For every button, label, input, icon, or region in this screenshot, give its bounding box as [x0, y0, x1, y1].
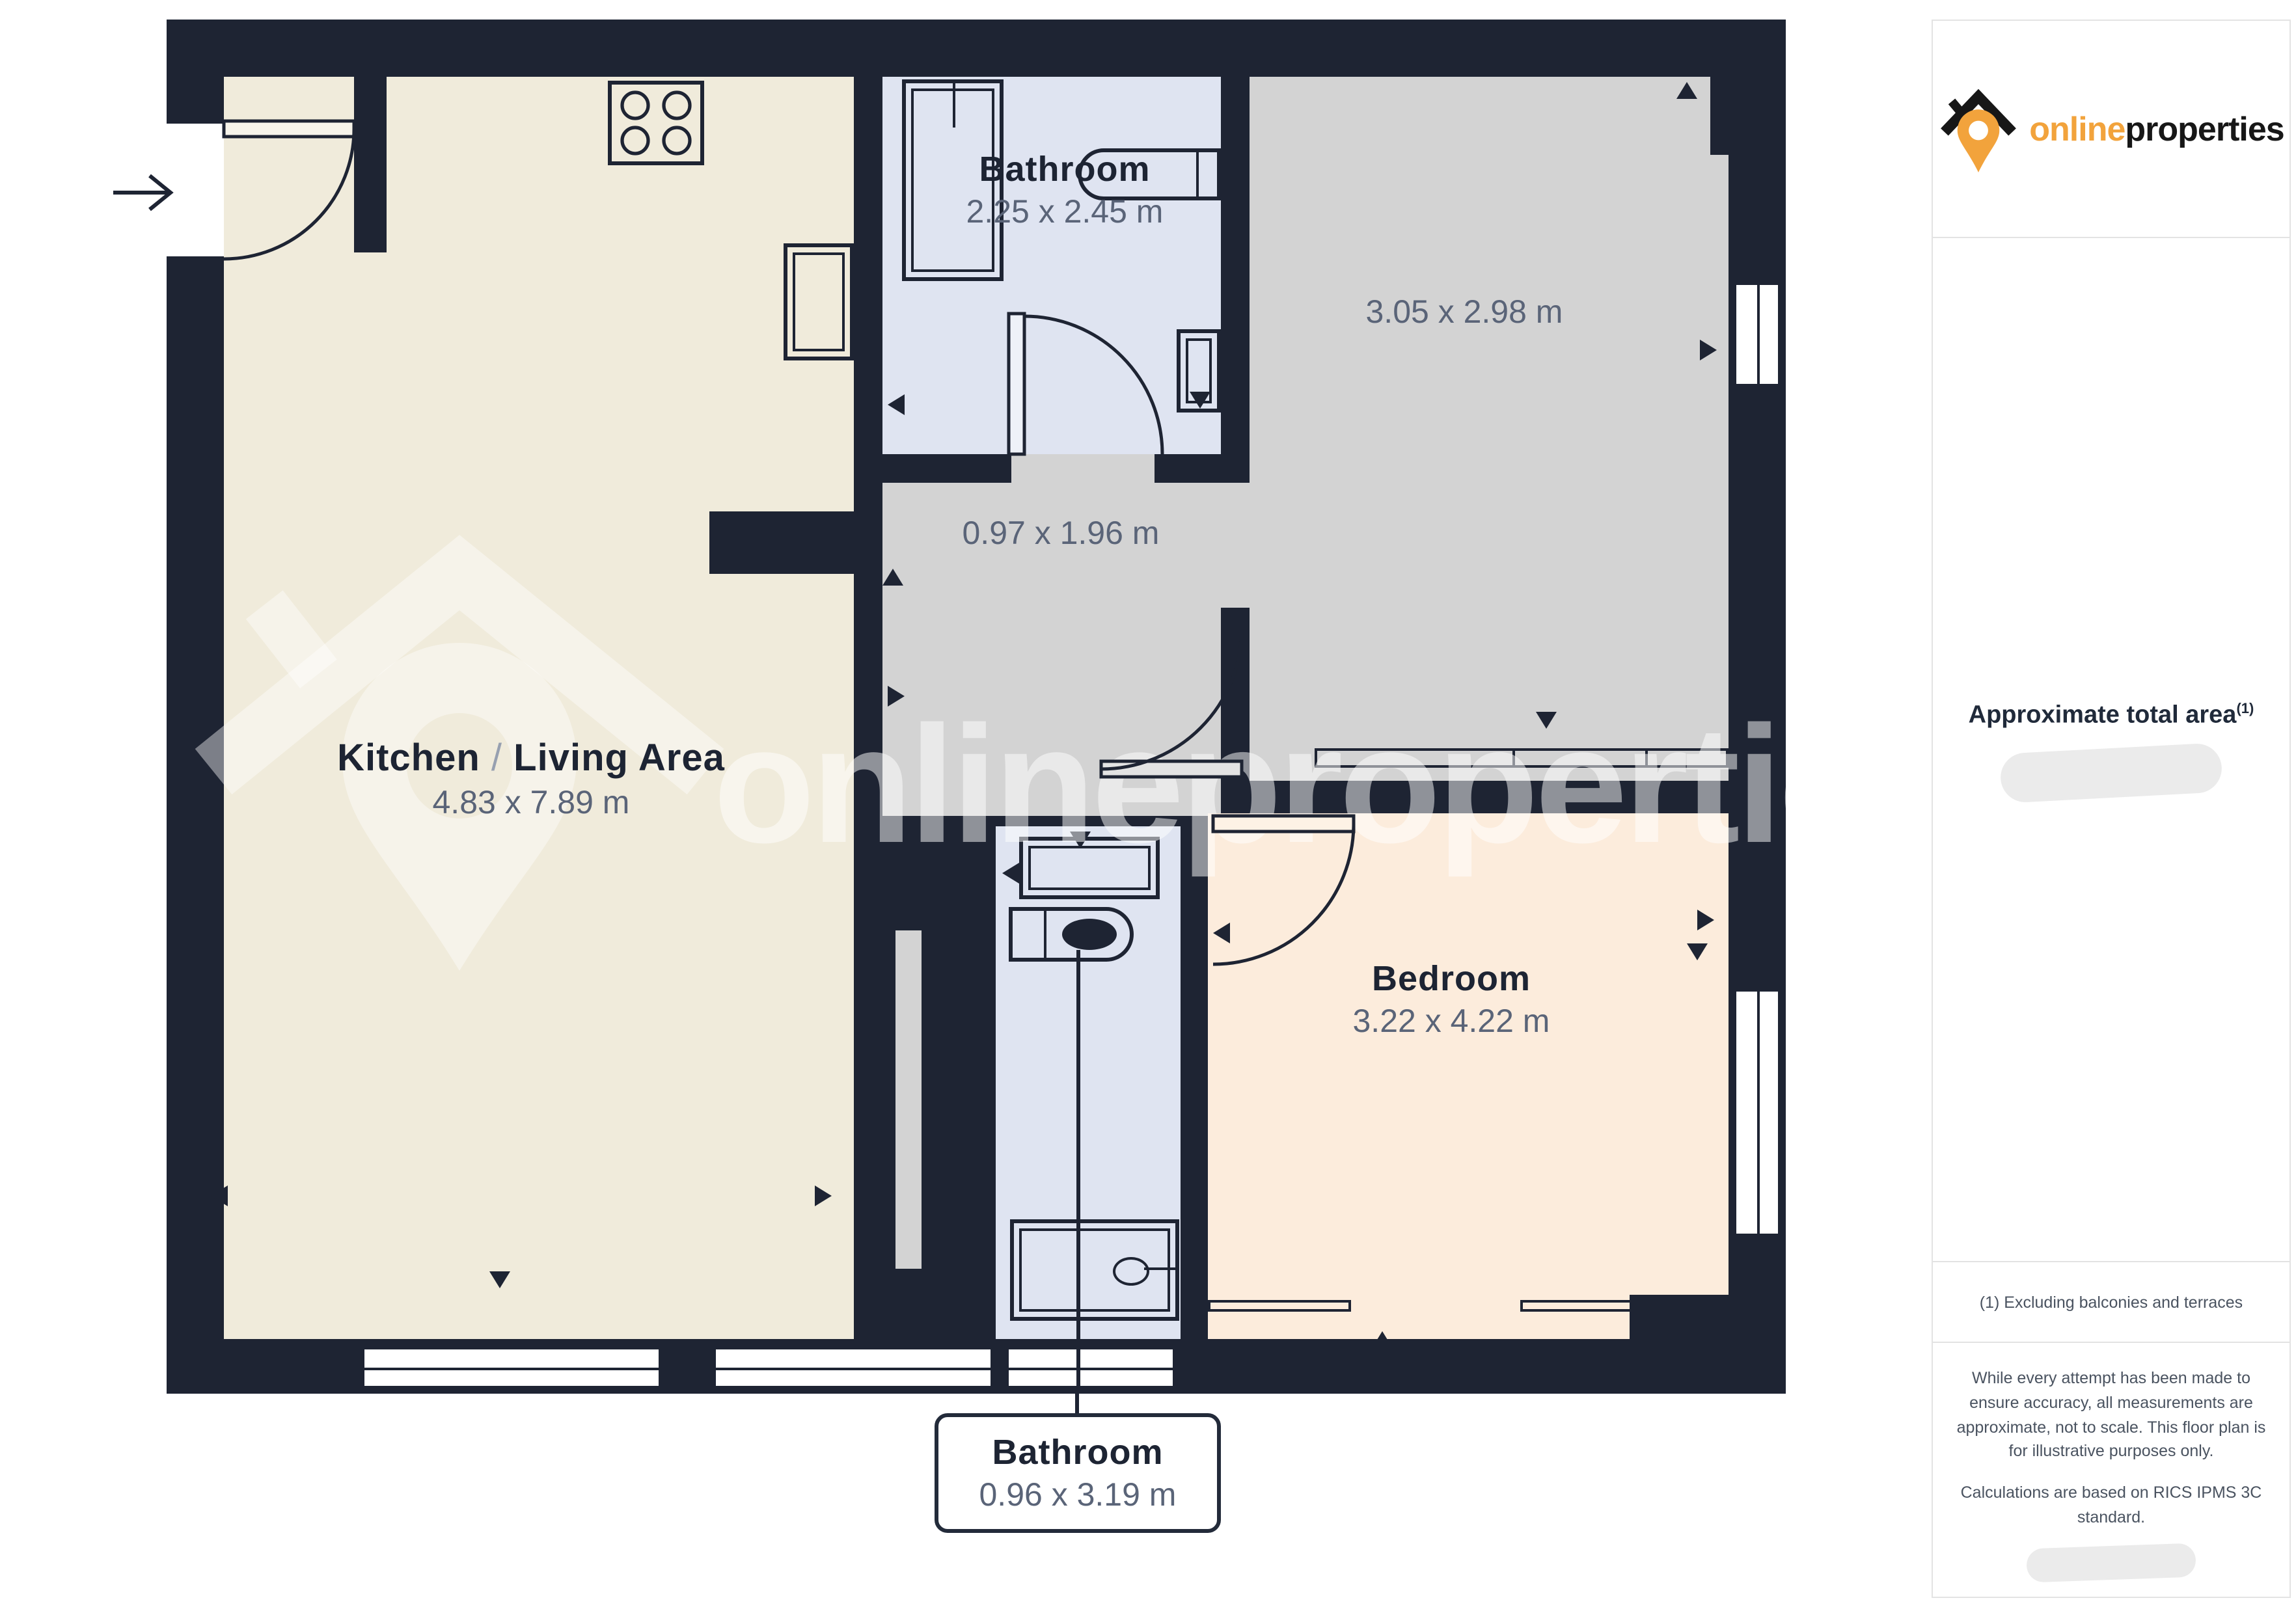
- redacted-reference: [2026, 1542, 2196, 1582]
- label-leader-line-2: [1075, 1394, 1079, 1413]
- disclaimer-section: While every attempt has been made to ens…: [1933, 1342, 2289, 1597]
- logo-wordmark: onlineproperties: [2029, 109, 2284, 149]
- page: onlineproperties: [0, 0, 2296, 1624]
- bathroom-top-name: Bathroom: [869, 150, 1260, 190]
- bedroom-label: Bedroom 3.22 x 4.22 m: [1256, 959, 1647, 1041]
- bathroom-top-label: Bathroom 2.25 x 2.45 m: [869, 150, 1260, 232]
- kitchen-dims: 4.83 x 7.89 m: [336, 785, 726, 822]
- kitchen-name-2: Living Area: [513, 738, 725, 779]
- bedroom-name: Bedroom: [1256, 959, 1647, 999]
- kitchen-name-1: Kitchen: [337, 738, 480, 779]
- logo: onlineproperties: [1933, 21, 2289, 237]
- logo-house-pin-icon: [1938, 82, 2019, 176]
- kitchen-label: Kitchen / Living Area 4.83 x 7.89 m: [336, 738, 726, 822]
- ensuite-name: Bathroom: [938, 1432, 1217, 1472]
- disclaimer-text-1: While every attempt has been made to ens…: [1951, 1366, 2271, 1464]
- redacted-area-value: [1999, 742, 2223, 804]
- logo-text-properties: properties: [2125, 109, 2284, 148]
- label-leader-line: [1076, 950, 1080, 1394]
- secondary-room-label: 3.05 x 2.98 m: [1269, 290, 1660, 332]
- floor-plan: onlineproperties: [167, 20, 1786, 1394]
- secondary-room-dims: 3.05 x 2.98 m: [1269, 294, 1660, 332]
- area-section: Approximate total area(1): [1933, 237, 2289, 1261]
- ensuite-label-box: Bathroom 0.96 x 3.19 m: [935, 1413, 1221, 1533]
- hallway-label: 0.97 x 1.96 m: [866, 511, 1256, 553]
- hallway-dims: 0.97 x 1.96 m: [866, 515, 1256, 553]
- sidebar: onlineproperties Approximate total area(…: [1932, 20, 2291, 1598]
- bedroom-dims: 3.22 x 4.22 m: [1256, 1003, 1647, 1041]
- area-title: Approximate total area(1): [1969, 701, 2254, 731]
- disclaimer-text-2: Calculations are based on RICS IPMS 3C s…: [1951, 1481, 2271, 1530]
- area-title-text: Approximate total area: [1969, 701, 2237, 729]
- bathroom-top-dims: 2.25 x 2.45 m: [869, 194, 1260, 232]
- ensuite-dims: 0.96 x 3.19 m: [938, 1476, 1217, 1514]
- area-title-superscript: (1): [2236, 701, 2254, 717]
- kitchen-name-sep: /: [491, 738, 502, 779]
- logo-text-online: online: [2029, 109, 2125, 148]
- footnote: (1) Excluding balconies and terraces: [1933, 1261, 2289, 1342]
